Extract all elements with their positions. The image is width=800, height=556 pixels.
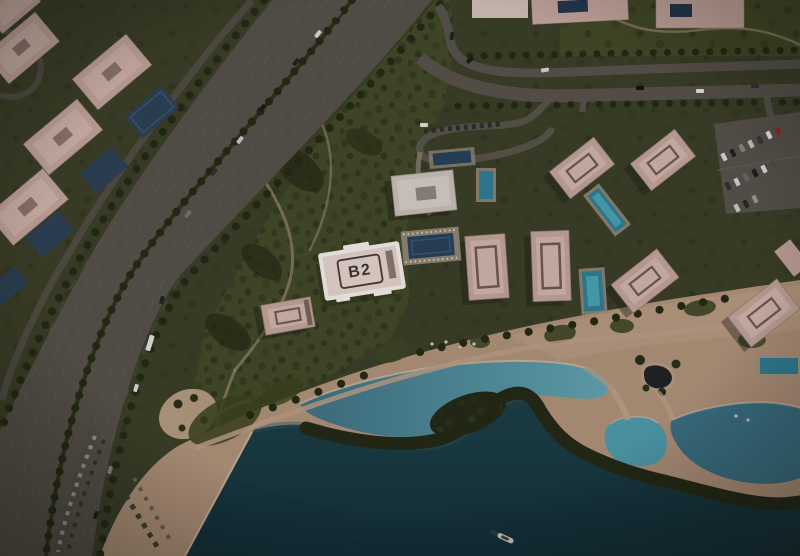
aerial-map: B2 — [0, 0, 800, 556]
vignette — [0, 0, 800, 556]
